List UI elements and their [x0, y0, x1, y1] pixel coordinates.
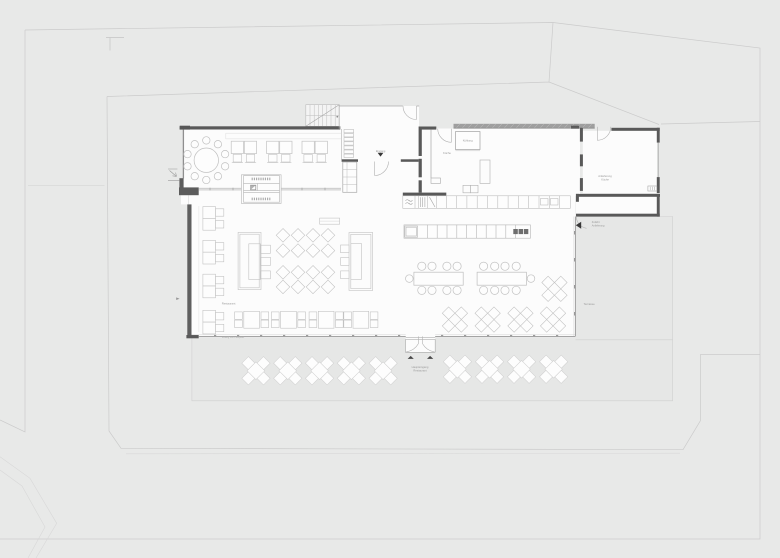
- svg-text:Anlieferung: Anlieferung: [598, 174, 612, 178]
- svg-text:Küche: Küche: [601, 177, 609, 181]
- svg-text:Eingang: Eingang: [376, 149, 386, 153]
- svg-text:Terrasse: Terrasse: [584, 302, 595, 306]
- svg-text:Anlieferung: Anlieferung: [592, 225, 605, 228]
- svg-text:Restaurant: Restaurant: [222, 302, 236, 306]
- svg-text:Haupteingang: Haupteingang: [412, 365, 429, 369]
- svg-text:Küche: Küche: [443, 151, 451, 155]
- svg-text:Zufahrt: Zufahrt: [592, 221, 600, 224]
- svg-text:Kühlung: Kühlung: [463, 138, 473, 142]
- svg-text:Zuweg von Parkplatz: Zuweg von Parkplatz: [222, 336, 245, 339]
- svg-text:Restaurant: Restaurant: [413, 368, 426, 372]
